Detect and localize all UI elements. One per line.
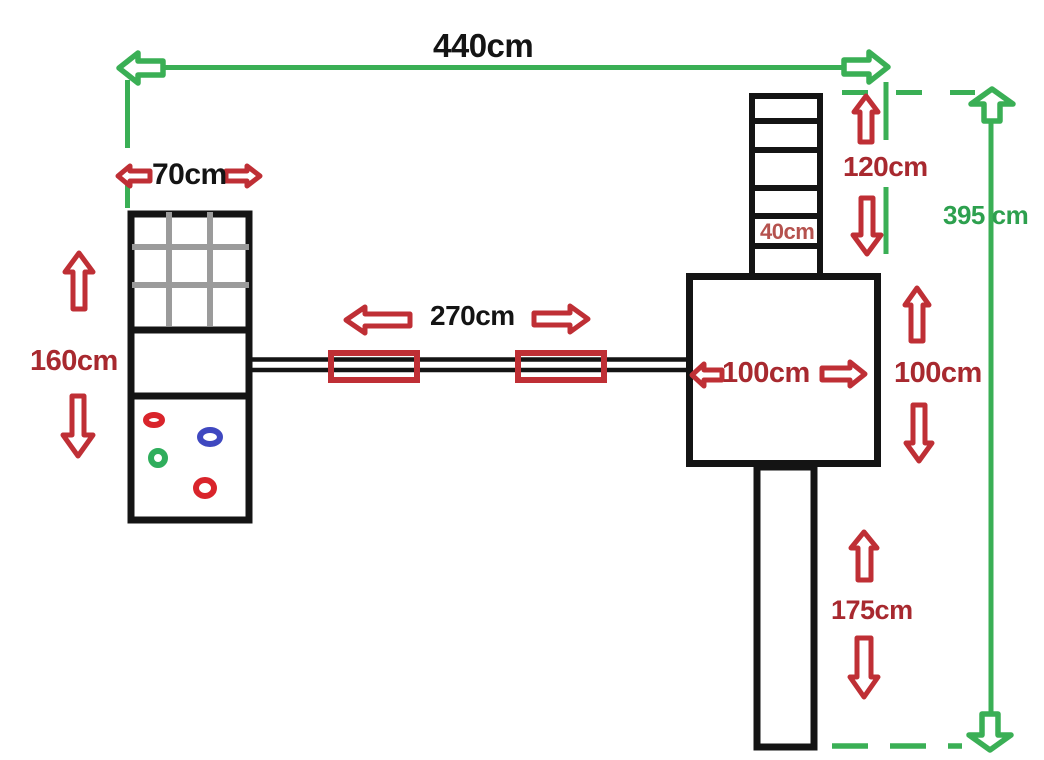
label-platform-height: 100cm [894, 359, 982, 388]
arrow-down-green-icon [969, 714, 1011, 750]
bridge-marker-right [518, 353, 604, 380]
label-bridge-length: 270cm [430, 302, 515, 330]
arrow-right-green-icon [844, 52, 888, 82]
slide-outline [757, 467, 814, 747]
label-total-height: 395 cm [943, 202, 1028, 228]
arrow-up-120-icon [854, 96, 878, 142]
arrow-right-70-icon [226, 166, 260, 186]
arrow-down-100-icon [906, 405, 932, 461]
label-ladder-height: 120cm [843, 153, 928, 181]
ladder [749, 93, 823, 273]
bridge-marker-left [331, 353, 417, 380]
arrow-left-270-icon [346, 307, 410, 333]
label-total-width: 440cm [433, 29, 533, 62]
arrow-down-120-icon [853, 198, 881, 254]
label-tower-height: 160cm [30, 347, 118, 376]
left-tower [128, 212, 252, 520]
label-ladder-rung: 40cm [760, 221, 814, 243]
label-platform-width: 100cm [722, 359, 810, 388]
playground-dimension-diagram: 440cm 70cm 160cm 270cm 100cm 100cm 120cm… [0, 0, 1044, 760]
left-tower-outline [131, 214, 249, 520]
arrow-left-70-icon [118, 166, 150, 186]
bridge [252, 353, 686, 380]
label-slide-height: 175cm [831, 597, 913, 624]
label-tower-width: 70cm [152, 160, 227, 190]
arrow-up-100-icon [905, 288, 929, 341]
arrow-up-160-icon [65, 253, 93, 309]
arrow-up-175-icon [851, 532, 877, 580]
arrow-up-green-icon [971, 89, 1013, 121]
slide [757, 467, 814, 747]
arrow-left-green-icon [119, 53, 163, 83]
diagram-linework [0, 0, 1044, 760]
arrow-right-270-icon [534, 306, 588, 332]
arrow-down-160-icon [63, 396, 93, 456]
arrow-down-175-icon [850, 638, 878, 697]
